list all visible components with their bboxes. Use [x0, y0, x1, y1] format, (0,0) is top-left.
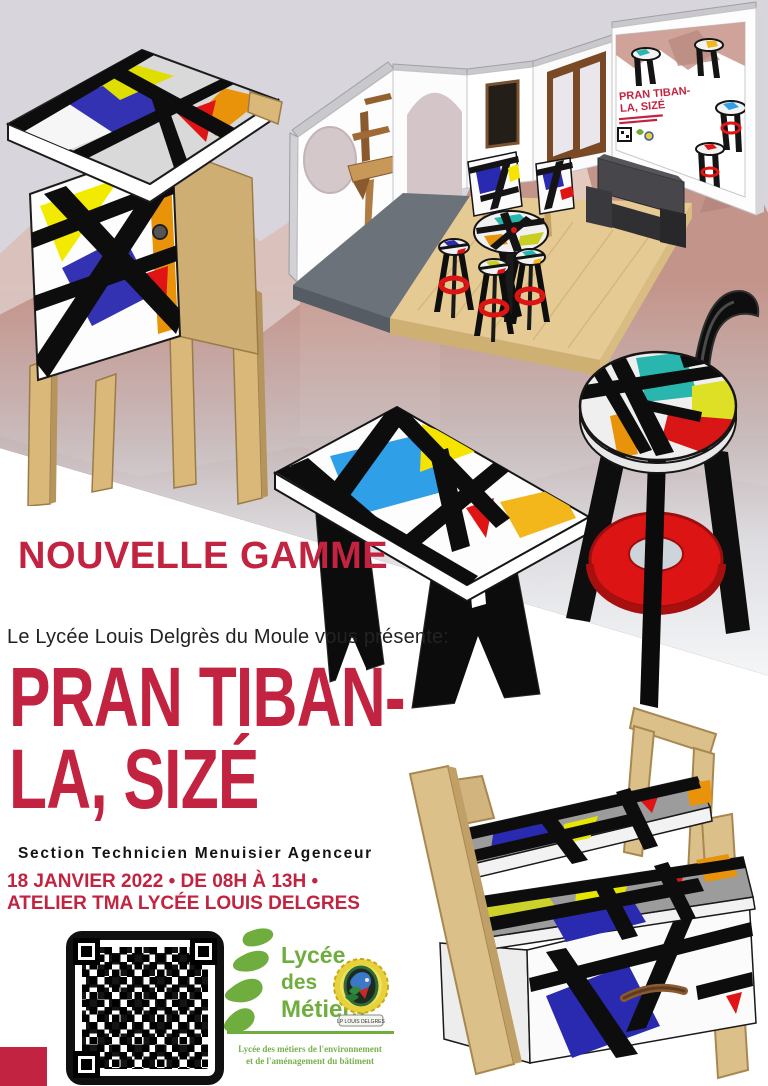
bar-stool-small [474, 259, 514, 342]
intro-line: Le Lycée Louis Delgrès du Moule vous pré… [7, 626, 449, 649]
poster-title-line1: PRAN TIBAN- [9, 656, 405, 738]
leaf-swoosh-icon [219, 927, 277, 1039]
logo-caption-line1: Lycée des métiers de l'environnement [212, 1043, 408, 1055]
logo-caption: Lycée des métiers de l'environnement et … [212, 1043, 408, 1067]
event-place-line: ATELIER TMA LYCÉE LOUIS DELGRES [7, 893, 360, 915]
event-date-line: 18 JANVIER 2022 • DE 08H À 13H • [7, 871, 360, 893]
new-range-text: NOUVELLE GAMME [18, 535, 388, 577]
section-line: Section Technicien Menuisier Agenceur [18, 845, 373, 863]
qr-code [66, 931, 224, 1085]
qr-modules [82, 947, 208, 1069]
logo-caption-line2: et de l'aménagement du bâtiment [212, 1055, 408, 1067]
poster-title: PRAN TIBAN- LA, SIZÉ [9, 656, 544, 821]
cabinet-render [0, 36, 286, 506]
new-range-label: NOUVELLE GAMME [18, 537, 388, 575]
red-corner-square [0, 1047, 47, 1086]
qr-finder-icon [73, 938, 100, 965]
bar-stool-small [510, 249, 550, 330]
bar-stool-render [552, 268, 768, 714]
bar-stool-small [434, 239, 474, 318]
qr-finder-icon [190, 938, 217, 965]
qr-finder-icon [73, 1051, 100, 1078]
school-emblem: LP LOUIS DELGRES [331, 953, 391, 1033]
emblem-banner-text: LP LOUIS DELGRES [337, 1019, 385, 1025]
poster-title-line2: LA, SIZÉ [9, 738, 405, 820]
event-poster: PRAN TIBAN- LA, SIZÉ [0, 0, 768, 1086]
event-details: 18 JANVIER 2022 • DE 08H À 13H • ATELIER… [7, 871, 360, 916]
